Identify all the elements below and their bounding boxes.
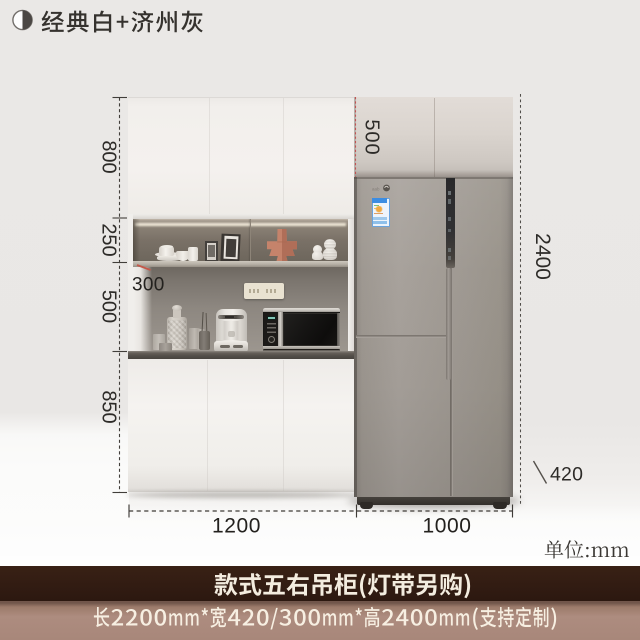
svg-text:1200: 1200	[212, 515, 261, 538]
svg-text:250: 250	[98, 223, 120, 256]
svg-text:800: 800	[98, 140, 120, 173]
svg-text:1000: 1000	[422, 515, 471, 538]
svg-text:500: 500	[98, 290, 120, 323]
svg-text:2400: 2400	[531, 233, 554, 280]
svg-text:850: 850	[98, 390, 120, 423]
svg-text:500: 500	[361, 119, 383, 155]
svg-text:420: 420	[550, 464, 583, 486]
svg-text:300: 300	[132, 275, 165, 296]
